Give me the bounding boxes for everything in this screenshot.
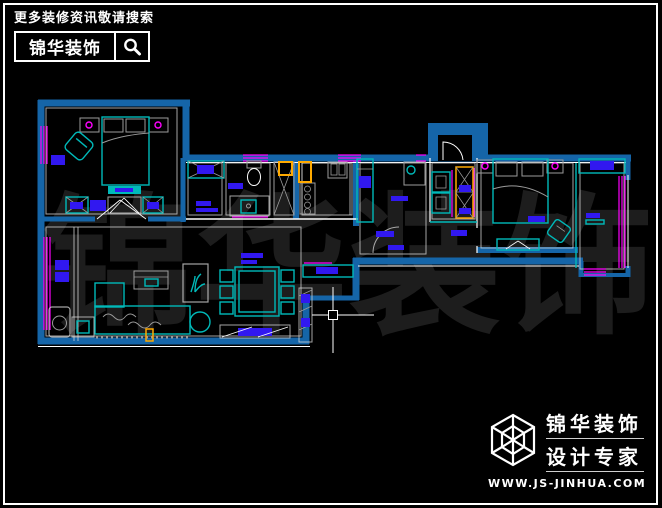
nightstand [477,160,493,173]
website-url: WWW.JS-JINHUA.COM [488,477,644,490]
side-table [190,312,210,332]
armchair [546,218,571,243]
shaft [274,162,294,215]
single-bed [357,159,373,222]
nightstand [547,160,563,173]
cabinet [55,260,69,270]
dining-table [235,267,279,316]
double-bed [493,159,548,223]
stool [407,166,415,174]
plant-icon [191,274,205,292]
room-label-mark [586,213,600,218]
bedroom-1 [51,117,168,219]
sofa [95,306,190,334]
balcony-left [49,307,94,337]
wireframe-cube-icon [488,412,538,468]
room-label-mark [391,196,408,201]
dining-chairs [220,270,294,314]
living-room [55,227,210,341]
brand-search-box: 锦华装饰 [14,31,150,62]
logo-brand-line1: 锦华装饰 [546,408,644,439]
balcony-right [579,159,625,224]
pickbox [329,311,338,320]
laundry-sink [72,317,94,337]
nightstand [80,118,99,132]
armchair [64,131,95,162]
lamp-icon [482,163,488,169]
chaise [95,283,124,307]
door-frame [299,162,311,182]
dining-area [220,253,294,338]
hallway [188,161,224,212]
lamp-icon [155,122,161,128]
room-label-mark [228,183,243,189]
washbasin [432,193,450,213]
washbasin [432,172,450,192]
search-icon [114,33,148,60]
nightstand [149,118,168,132]
promo-header: 更多装修资讯敬请搜索 锦华装饰 [14,7,154,62]
kitchen [299,162,350,215]
brand-name: 锦华装饰 [16,33,114,60]
bathroom-1 [228,161,269,216]
lamp-icon [552,163,558,169]
room-label-mark [241,253,263,258]
room-label-mark [388,245,404,250]
radiator [51,155,65,165]
tv [145,279,158,286]
promo-tagline: 更多装修资讯敬请搜索 [14,7,154,26]
logo-brand-line2: 设计专家 [546,441,644,472]
desk [404,162,425,185]
room-label-mark [196,201,211,206]
lamp-icon [86,122,92,128]
room-label-mark [451,230,467,236]
company-logo-block: 锦华装饰 设计专家 WWW.JS-JINHUA.COM [488,408,644,490]
study-room [357,159,425,253]
bedroom-3 [477,159,572,250]
